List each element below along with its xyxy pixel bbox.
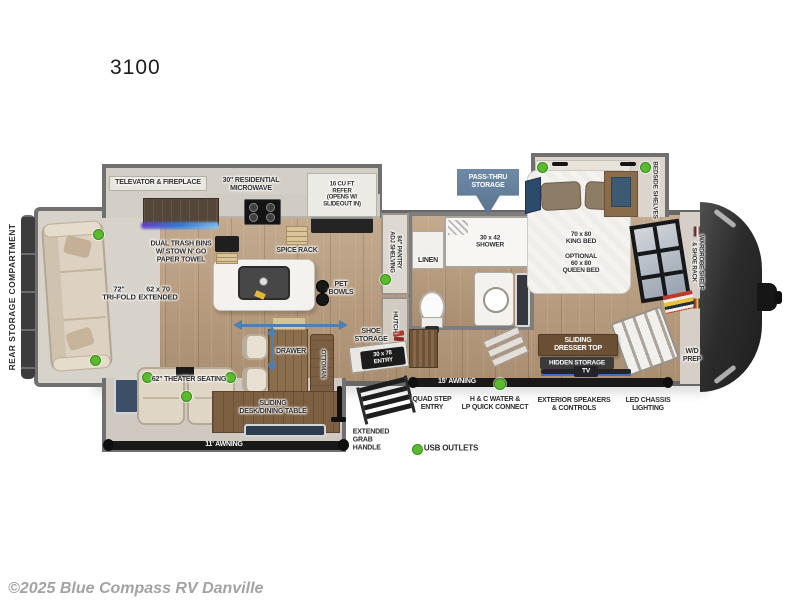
grab-handle-base: [331, 417, 346, 422]
theater-console: [176, 367, 194, 379]
shoe-storage-cabinet: [409, 329, 438, 368]
tri-fold-sofa: [39, 218, 115, 374]
fireplace-glow: [141, 222, 219, 229]
usb-outlet-dot: [380, 274, 391, 285]
sliding-dresser-plate: [538, 334, 618, 356]
awning-end-cap: [663, 377, 673, 388]
bedside-shelf-art: [611, 177, 631, 207]
awning-end-cap: [103, 439, 114, 451]
pass-thru-arrow: [457, 169, 519, 215]
bed-pillow: [540, 181, 581, 211]
slideout-window: [114, 378, 139, 414]
dining-chair: [242, 367, 268, 393]
rear-storage-compartment: [21, 215, 35, 379]
spice-rack: [286, 226, 308, 245]
ottoman: [310, 334, 334, 396]
speakers-label: EXTERIOR SPEAKERS & CONTROLS: [538, 397, 611, 413]
shower-head-hatch: [448, 220, 468, 235]
slide-arrow-down: [267, 363, 277, 372]
usb-outlet-dot: [494, 378, 506, 390]
usb-outlet-dot: [181, 391, 192, 402]
watermark: ©2025 Blue Compass RV Danville: [8, 580, 263, 598]
grab-handle-label: EXTENDED GRAB HANDLE: [353, 428, 390, 451]
sink-faucet: [259, 277, 268, 286]
grab-handle: [337, 386, 342, 420]
televator-label-plate: [109, 176, 207, 191]
vanity-sink: [483, 287, 509, 313]
water-connect-label: H & C WATER & LP QUICK CONNECT: [462, 396, 529, 412]
trash-drawer: [216, 253, 238, 264]
drawer-cabinet: [268, 329, 308, 395]
vanity: [474, 272, 514, 326]
quad-step-label: QUAD STEP ENTRY: [412, 396, 451, 412]
hitch-pin-nub: [775, 291, 782, 304]
floorplan-page: 3100 ©2025 Blue Compass RV Danville: [0, 0, 800, 600]
rear-storage-label: REAR STORAGE COMPARTMENT: [8, 207, 18, 387]
usb-outlet-dot: [142, 372, 153, 383]
slide-arrow-line: [241, 324, 340, 327]
usb-outlet-dot: [90, 355, 101, 366]
shower: [444, 216, 530, 268]
usb-legend-label: USB OUTLETS: [424, 445, 478, 454]
tv-label-plate: [574, 366, 598, 377]
awning-end-cap: [338, 439, 349, 451]
floorplan-number: 3100: [110, 56, 161, 80]
front-cap: [700, 202, 762, 392]
pet-bowl: [316, 293, 329, 306]
slide-arrow-vline: [271, 334, 274, 364]
usb-outlet-dot: [640, 162, 651, 173]
usb-outlet-dot: [225, 372, 236, 383]
sofa-armrest-bottom: [52, 354, 111, 372]
kitchen-island: [213, 259, 315, 311]
slideout-window: [244, 424, 326, 437]
sconce-lamp: [552, 162, 568, 166]
usb-outlet-dot: [93, 229, 104, 240]
pass-thru-door: [525, 177, 541, 214]
pet-bowl: [316, 280, 329, 293]
sconce-lamp: [620, 162, 636, 166]
usb-outlet-dot: [537, 162, 548, 173]
awning-end-cap: [408, 377, 418, 388]
refrigerator-plate: [307, 173, 377, 217]
chassis-lighting-label: LED CHASSIS LIGHTING: [626, 397, 671, 413]
linen-closet: [412, 231, 444, 269]
usb-legend-dot: [412, 444, 423, 455]
awning-15ft: [412, 378, 668, 387]
dining-chair: [242, 334, 268, 360]
stove: [244, 199, 281, 225]
refrigerator: [311, 217, 373, 233]
trash-bin: [215, 236, 239, 252]
slide-arrow-right: [339, 320, 348, 330]
awning-11ft: [108, 441, 344, 450]
hitch-pin: [757, 283, 777, 311]
